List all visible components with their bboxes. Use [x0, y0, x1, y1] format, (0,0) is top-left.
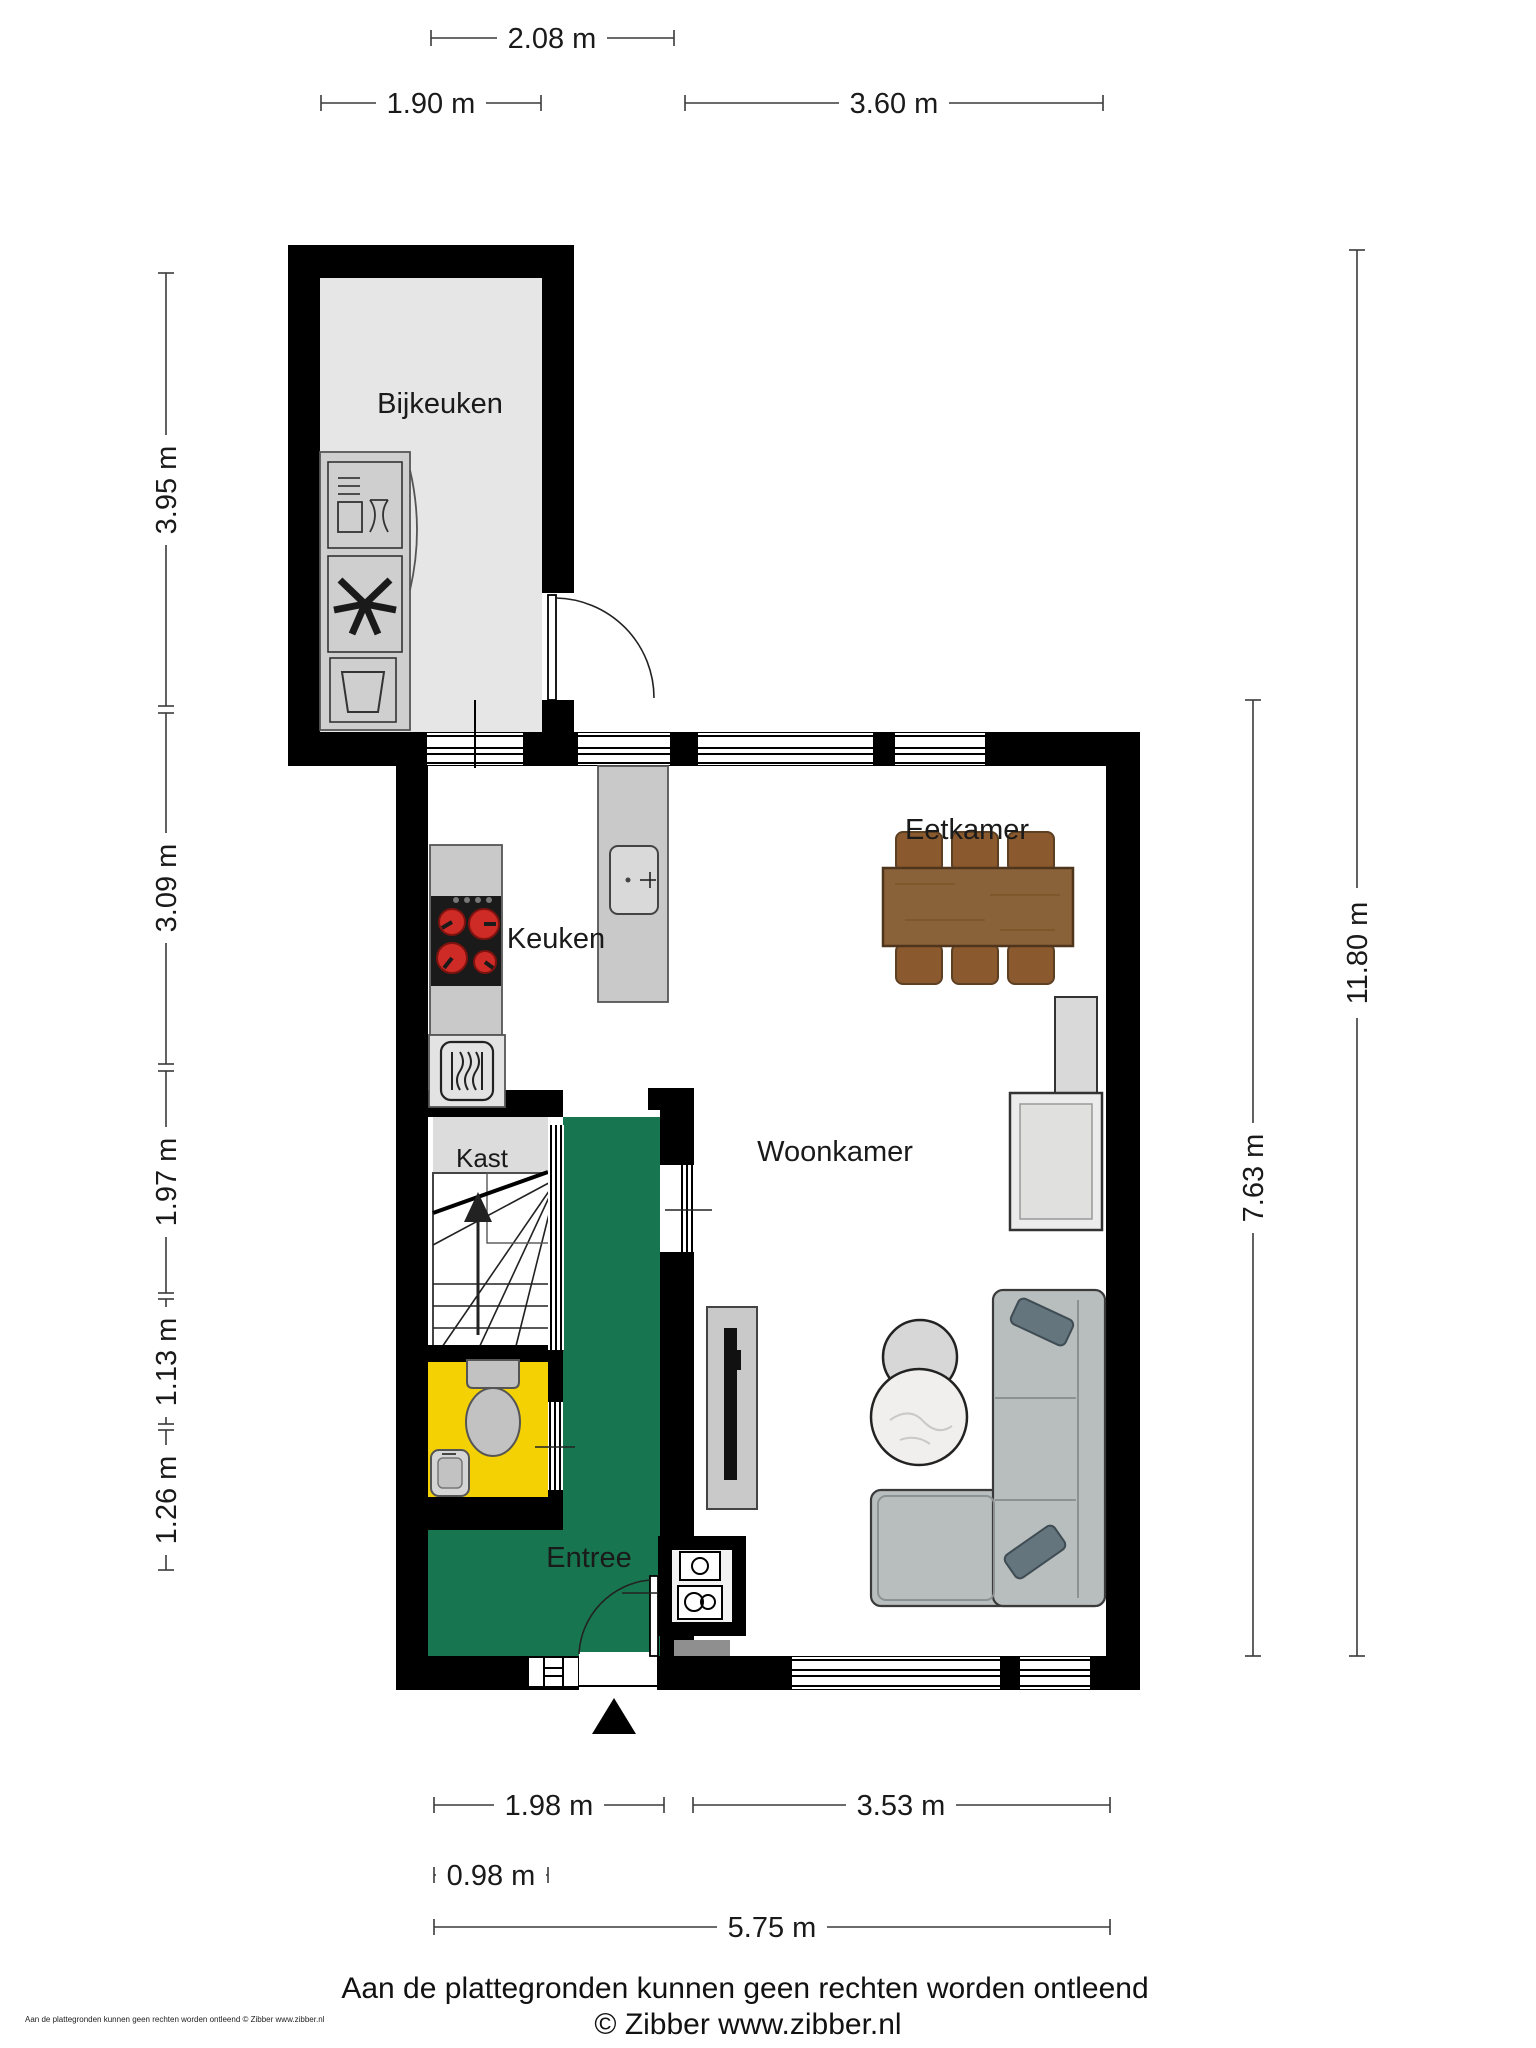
svg-text:0.98 m: 0.98 m [447, 1860, 536, 1892]
door-leaf [650, 1576, 658, 1656]
doorstep [674, 1640, 730, 1656]
gas-meter-icon [678, 1586, 722, 1619]
electric-meter-icon [680, 1552, 720, 1580]
svg-text:1.13 m: 1.13 m [151, 1318, 183, 1407]
side-tables [871, 1320, 967, 1465]
oven-icon [429, 1035, 505, 1107]
footer-micro-disclaimer: Aan de plattegronden kunnen geen rechten… [25, 2015, 325, 2024]
svg-text:7.63 m: 7.63 m [1238, 1134, 1270, 1223]
dim-top-3-60: 3.60 m [685, 85, 1103, 121]
tv-cabinet [707, 1307, 757, 1509]
bijkeuken-counter [320, 452, 417, 730]
floorplan-page: Bijkeuken Keuken Eetkamer Woonkamer Kast… [0, 0, 1536, 2048]
svg-text:1.97 m: 1.97 m [151, 1138, 183, 1227]
footer-disclaimer: Aan de plattegronden kunnen geen rechten… [341, 1972, 1148, 2005]
window [792, 1657, 1000, 1689]
dining-set [883, 832, 1073, 984]
hand-basin-icon [431, 1450, 469, 1496]
window [1020, 1657, 1090, 1689]
svg-text:3.60 m: 3.60 m [850, 88, 939, 120]
dim-right-7-63: 7.63 m [1235, 700, 1271, 1656]
svg-text:3.95 m: 3.95 m [151, 446, 183, 535]
svg-text:3.53 m: 3.53 m [857, 1790, 946, 1822]
window [578, 733, 670, 765]
door-leaf [548, 595, 556, 700]
stairs-glass-panel [548, 1125, 564, 1350]
svg-text:2.08 m: 2.08 m [508, 23, 597, 55]
entrance-marker-icon [592, 1698, 636, 1734]
floorplan-drawing: Bijkeuken Keuken Eetkamer Woonkamer Kast… [0, 0, 1536, 2048]
dim-left-1-97: 1.97 m [148, 1071, 184, 1293]
stairs [433, 1172, 563, 1350]
bijkeuken-exterior-door [542, 593, 654, 700]
window [698, 733, 873, 765]
fireplace [1010, 997, 1102, 1230]
room-label-eetkamer: Eetkamer [905, 814, 1029, 846]
toilet-icon [466, 1360, 520, 1456]
svg-text:1.98 m: 1.98 m [505, 1790, 594, 1822]
dim-top-1-90: 1.90 m [321, 85, 541, 121]
dim-bottom-1-98: 1.98 m [434, 1787, 664, 1823]
stove-counter [429, 845, 505, 1107]
kitchen-sink-counter [598, 766, 668, 1002]
dim-bottom-0-98: 0.98 m [434, 1857, 548, 1893]
room-label-kast: Kast [456, 1143, 509, 1173]
room-label-keuken: Keuken [507, 923, 605, 955]
dim-left-3-09: 3.09 m [148, 713, 184, 1064]
dim-left-1-26: 1.26 m [148, 1430, 184, 1570]
dim-left-3-95: 3.95 m [148, 273, 184, 706]
room-label-bijkeuken: Bijkeuken [377, 388, 503, 420]
dining-table [883, 868, 1073, 946]
entree-glass-panel [660, 1165, 712, 1252]
room-label-entree: Entree [546, 1542, 631, 1574]
cooktop-icon [431, 896, 501, 986]
svg-text:11.80 m: 11.80 m [1342, 902, 1374, 1005]
svg-text:1.26 m: 1.26 m [151, 1456, 183, 1545]
dim-left-1-13: 1.13 m [148, 1299, 184, 1424]
window [895, 733, 985, 765]
svg-text:3.09 m: 3.09 m [151, 844, 183, 933]
sidelight-window [528, 1657, 579, 1687]
dim-bottom-3-53: 3.53 m [693, 1787, 1110, 1823]
dim-right-11-80: 11.80 m [1339, 250, 1375, 1656]
dim-bottom-5-75: 5.75 m [434, 1909, 1110, 1945]
svg-text:1.90 m: 1.90 m [387, 88, 476, 120]
dim-top-2-08: 2.08 m [431, 20, 674, 56]
svg-text:5.75 m: 5.75 m [728, 1912, 817, 1944]
footer-copyright: © Zibber www.zibber.nl [594, 2008, 901, 2041]
room-label-woonkamer: Woonkamer [757, 1136, 913, 1168]
